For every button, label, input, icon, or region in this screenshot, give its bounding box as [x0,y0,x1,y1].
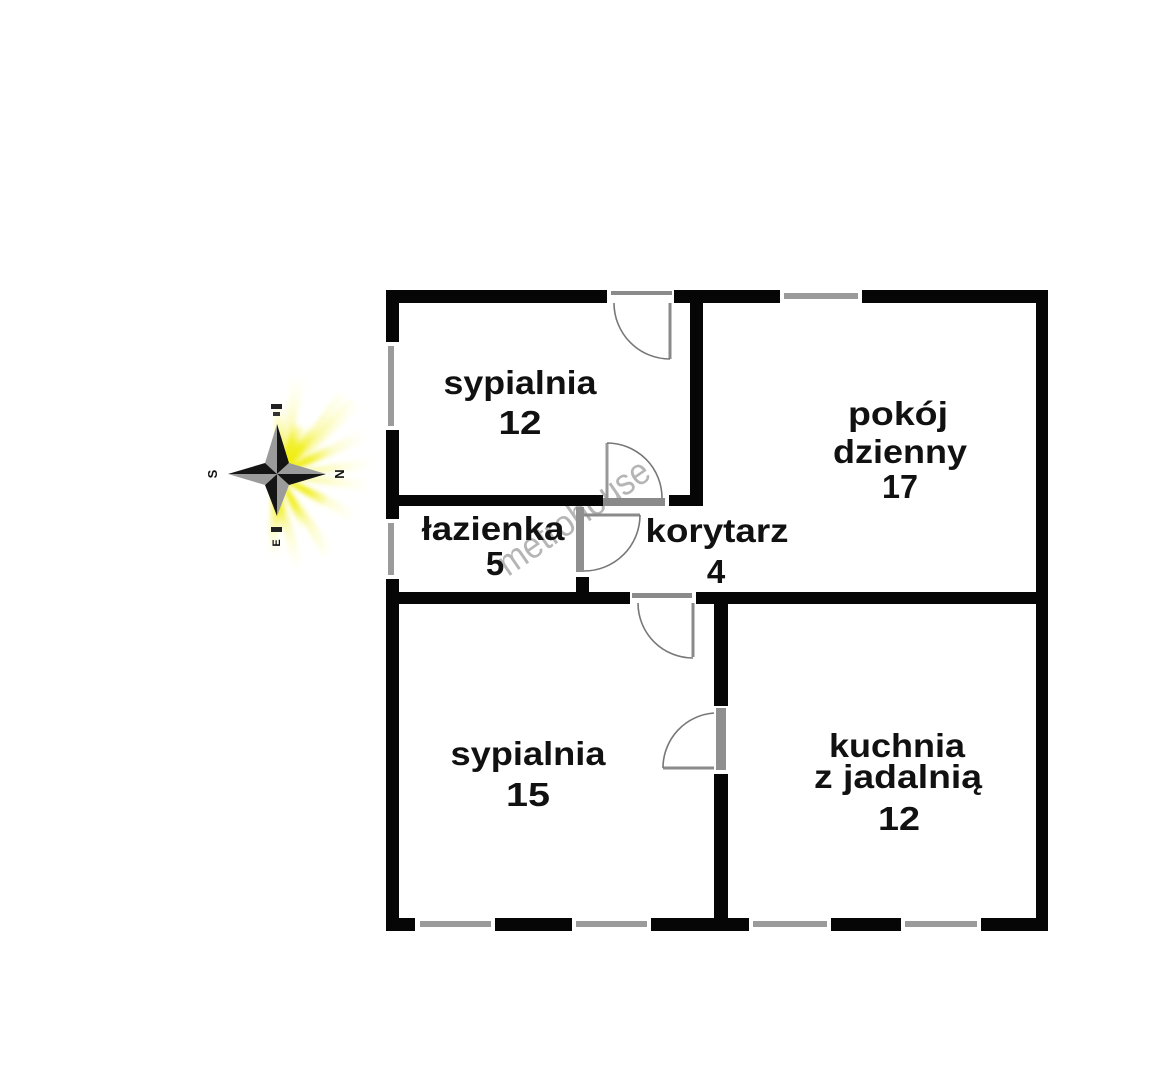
svg-text:5: 5 [486,545,504,582]
svg-text:17: 17 [882,468,918,505]
svg-text:S: S [205,469,220,478]
svg-text:z jadalnią: z jadalnią [814,758,983,795]
svg-text:12: 12 [499,404,542,441]
svg-text:12: 12 [878,800,920,837]
svg-text:N: N [332,469,347,478]
svg-text:pokój: pokój [848,395,948,432]
svg-text:dzienny: dzienny [833,433,968,470]
svg-text:korytarz: korytarz [646,512,789,549]
svg-text:4: 4 [707,553,726,590]
svg-text:sypialnia: sypialnia [444,364,598,401]
svg-text:E: E [271,539,283,546]
svg-text:łazienka: łazienka [422,510,566,547]
svg-text:15: 15 [506,776,550,813]
svg-text:sypialnia: sypialnia [451,735,607,772]
